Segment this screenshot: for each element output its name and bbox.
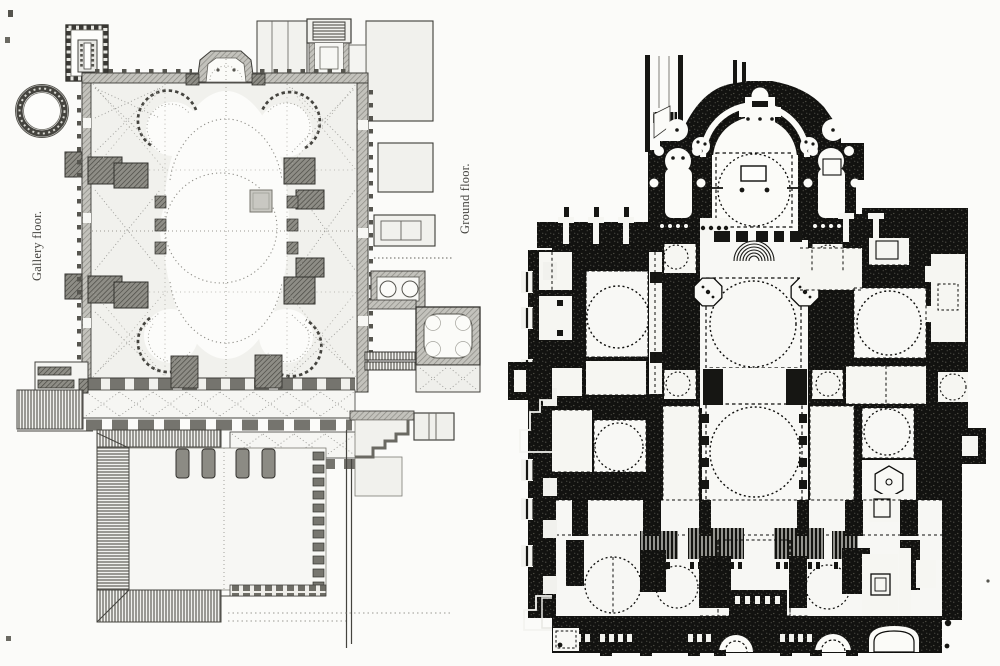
svg-text:Gallery floor.: Gallery floor. [30, 211, 44, 281]
svg-text:Ground floor.: Ground floor. [458, 163, 472, 234]
